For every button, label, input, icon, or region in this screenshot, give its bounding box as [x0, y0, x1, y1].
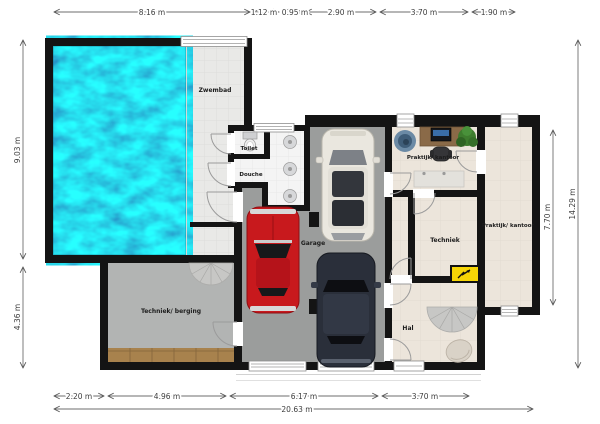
- floor-plan-page: Zwembad Toilet Douche Garage Praktijk/ k…: [0, 0, 600, 424]
- dim-top-4: 2.90 m: [328, 8, 354, 17]
- room-label-techniek-berging: Techniek/ berging: [141, 308, 201, 315]
- room-label-techniek: Techniek: [430, 237, 461, 244]
- hal-entry-door: [394, 361, 424, 371]
- room-label-praktijk-kantoor-1: Praktijk/ kantoor: [407, 155, 460, 161]
- wood-floor-strip: [108, 348, 234, 362]
- window-office-top: [397, 114, 414, 127]
- dim-right-1: 7.70 m: [543, 204, 552, 230]
- right-office-tiles: [485, 127, 532, 307]
- dim-top-3: 0.95 m: [282, 8, 308, 17]
- dim-left-2: 4.36 m: [13, 304, 22, 330]
- swimming-pool-water: [53, 46, 187, 255]
- window-pool-top: [181, 37, 247, 47]
- dim-top-6: 1.90 m: [481, 8, 507, 17]
- window-toilet-top: [254, 124, 294, 133]
- room-label-hal: Hal: [402, 325, 413, 332]
- room-label-garage: Garage: [301, 240, 325, 247]
- dim-right-2: 14.29 m: [568, 188, 577, 219]
- dim-bottom-2: 4.96 m: [154, 392, 180, 401]
- car-white-icon: [316, 129, 380, 241]
- car-dark-icon: [311, 253, 381, 367]
- room-label-praktijk-kantoor-2: Praktijk/ kantoor: [482, 223, 535, 229]
- car-red-icon: [247, 207, 299, 313]
- dim-bottom-4: 3.70 m: [412, 392, 438, 401]
- dim-top-2: 1.12 m: [251, 8, 277, 17]
- room-label-douche: Douche: [239, 172, 262, 178]
- window-right-office-top: [501, 114, 518, 127]
- dim-bottom-3: 6.17 m: [291, 392, 317, 401]
- dim-left-1: 9.03 m: [13, 137, 22, 163]
- window-right-office-bottom: [501, 306, 518, 316]
- dim-top-5: 3.70 m: [411, 8, 437, 17]
- room-label-toilet: Toilet: [241, 146, 258, 152]
- rug-icon: [394, 130, 416, 152]
- garage-pillar: [309, 212, 319, 227]
- dim-bottom-total: 20.63 m: [281, 405, 312, 414]
- shower-head-icon: [284, 136, 297, 203]
- room-label-zwembad: Zwembad: [199, 87, 232, 94]
- garage-door: [249, 361, 306, 371]
- dim-top-1: 8.16 m: [139, 8, 165, 17]
- sink-counter-icon: [414, 171, 464, 187]
- dim-bottom-1: 2.20 m: [66, 392, 92, 401]
- floor-plan-canvas: Zwembad Toilet Douche Garage Praktijk/ k…: [0, 0, 600, 424]
- electrical-panel-icon: [451, 266, 479, 282]
